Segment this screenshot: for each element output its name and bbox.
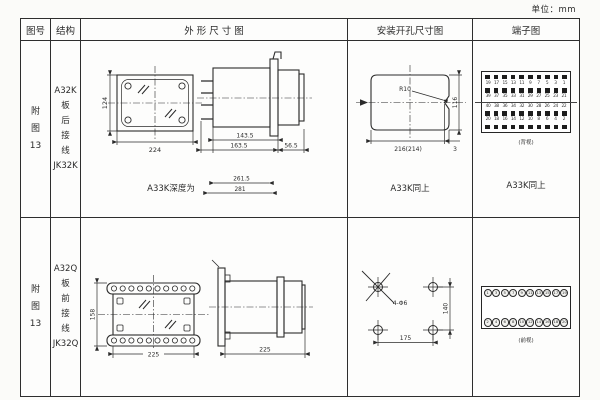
fig-no-char: 附 xyxy=(31,107,40,118)
row1-mounting-drawing: R10 216(214) 3 116 A33K同上 xyxy=(348,41,472,217)
header-structure: 结构 xyxy=(51,19,81,41)
terminal-circle: 14 xyxy=(535,318,543,326)
dim-front-height: 124 xyxy=(101,97,109,109)
terminal-circle: 3 xyxy=(492,289,500,297)
structure-line: JK32Q xyxy=(53,339,79,350)
dim-holes: 4-Φ6 xyxy=(393,300,408,307)
terminal-square xyxy=(511,111,516,116)
row2-fig-no-cell: 附图13 xyxy=(21,218,51,396)
row2-mounting-drawing: 4-Φ6 140 175 xyxy=(348,218,472,395)
terminal-square xyxy=(494,111,499,116)
terminal-square xyxy=(528,125,533,130)
terminal-strip-front: 135791113151719 2468101214161820 xyxy=(481,286,571,329)
structure-line: A32Q xyxy=(54,264,77,275)
terminal-number: 16 xyxy=(502,118,508,123)
terminal-number: 33 xyxy=(510,95,516,100)
row1-fig-no-cell: 附图13 xyxy=(21,41,51,218)
row1-terminal-cell: 191715131197531 39373533312927252321 403… xyxy=(473,41,579,218)
terminal-square xyxy=(485,75,490,80)
terminal-square xyxy=(528,111,533,116)
structure-line: 线 xyxy=(61,324,70,335)
terminal-number: 4 xyxy=(553,118,559,123)
terminal-circle: 7 xyxy=(509,289,517,297)
row2-fig-no: 附图13 xyxy=(21,218,50,396)
dim-side-inner: 143.5 xyxy=(236,133,253,140)
terminal-number: 3 xyxy=(553,82,559,87)
fig-no-char: 图 xyxy=(31,302,40,313)
dim-side-depth: 56.5 xyxy=(284,143,298,150)
terminal-square xyxy=(545,125,550,130)
row2-structure-cell: A32Q板前接线JK32Q xyxy=(51,218,81,396)
terminal-circle: 2 xyxy=(484,318,492,326)
front-view xyxy=(108,66,202,140)
dim-pitch-v: 140 xyxy=(443,303,450,315)
terminal-square-row xyxy=(485,88,567,93)
terminal-grid-rear: 191715131197531 39373533312927252321 403… xyxy=(481,71,571,133)
terminal-number: 8 xyxy=(536,118,542,123)
terminal-square xyxy=(511,125,516,130)
structure-line: 线 xyxy=(61,146,70,157)
terminal-number-row: 2018161412108642 xyxy=(485,118,567,123)
terminal-number-row: 40383634323028262422 xyxy=(485,105,567,110)
terminal-square xyxy=(519,111,524,116)
terminal-number: 36 xyxy=(502,105,508,110)
dim-front-width: 225 xyxy=(148,352,160,359)
terminal-square xyxy=(511,75,516,80)
terminal-number: 38 xyxy=(493,105,499,110)
terminal-number: 26 xyxy=(544,105,550,110)
dim-cut-height: 116 xyxy=(452,97,459,109)
terminal-circle: 10 xyxy=(518,318,526,326)
terminal-square xyxy=(545,75,550,80)
fig-no-char: 13 xyxy=(30,141,41,152)
terminal-square xyxy=(554,75,559,80)
terminal-square xyxy=(485,88,490,93)
dim-depth-outer: 281 xyxy=(234,187,245,193)
terminal-caption-front: (前视) xyxy=(473,336,579,344)
side-view xyxy=(197,52,312,136)
terminal-square xyxy=(519,88,524,93)
terminal-centerline xyxy=(475,102,577,103)
terminal-square xyxy=(554,111,559,116)
header-terminal: 端子图 xyxy=(473,19,579,41)
cutout-dimensions xyxy=(371,75,462,144)
terminal-number: 34 xyxy=(510,105,516,110)
terminal-circle: 13 xyxy=(535,289,543,297)
terminal-square xyxy=(502,125,507,130)
dim-front-width: 224 xyxy=(149,146,161,154)
terminal-number: 13 xyxy=(510,82,516,87)
terminal-square xyxy=(537,125,542,130)
terminal-number: 10 xyxy=(527,118,533,123)
terminal-square xyxy=(545,88,550,93)
terminal-square xyxy=(562,111,567,116)
terminal-circle: 12 xyxy=(526,318,534,326)
terminal-square xyxy=(562,88,567,93)
terminal-square xyxy=(537,75,542,80)
row1-outline-drawing: 124 224 143.5 163. xyxy=(81,41,347,217)
terminal-number: 25 xyxy=(544,95,550,100)
structure-line: JK32K xyxy=(53,161,77,172)
terminal-square xyxy=(519,125,524,130)
terminal-number: 27 xyxy=(536,95,542,100)
spec-sheet-page: 单位：mm 图号 结构 外 形 尺 寸 图 安装开孔尺寸图 端子图 附图13 A… xyxy=(0,0,600,400)
depth-note-label: A33K深度为 xyxy=(147,183,195,194)
structure-line: 接 xyxy=(61,131,70,142)
terminal-square xyxy=(545,111,550,116)
terminal-number: 37 xyxy=(493,95,499,100)
terminal-number: 1 xyxy=(561,82,567,87)
row2-mounting-cell: 4-Φ6 140 175 xyxy=(348,218,473,396)
spec-table: 图号 结构 外 形 尺 寸 图 安装开孔尺寸图 端子图 附图13 A32K板后接… xyxy=(20,18,580,397)
row1-structure-cell: A32K板后接线JK32K xyxy=(51,41,81,218)
terminal-square xyxy=(502,111,507,116)
terminal-number: 28 xyxy=(536,105,542,110)
terminal-number: 17 xyxy=(493,82,499,87)
terminal-circle-row: 2468101214161820 xyxy=(484,318,569,326)
structure-line: 板 xyxy=(61,101,70,112)
terminal-number: 24 xyxy=(553,105,559,110)
dim-side-outer: 163.5 xyxy=(230,143,247,150)
terminal-square xyxy=(528,88,533,93)
header-outline: 外 形 尺 寸 图 xyxy=(81,19,348,41)
terminal-circle: 16 xyxy=(543,318,551,326)
structure-line: 前 xyxy=(61,294,70,305)
dim-side-width: 225 xyxy=(259,347,271,354)
terminal-square xyxy=(562,75,567,80)
terminal-number: 32 xyxy=(519,105,525,110)
terminal-note: A33K同上 xyxy=(473,179,579,191)
terminal-circle: 17 xyxy=(552,289,560,297)
terminal-square xyxy=(485,111,490,116)
terminal-number: 18 xyxy=(493,118,499,123)
terminal-number-row: 191715131197531 xyxy=(485,82,567,87)
terminal-square xyxy=(537,111,542,116)
front-view xyxy=(98,275,210,359)
dim-front-height: 158 xyxy=(90,309,97,321)
terminal-number: 40 xyxy=(485,105,491,110)
cutout-shape xyxy=(356,65,466,140)
row1-mounting-cell: R10 216(214) 3 116 A33K同上 xyxy=(348,41,473,218)
terminal-circle: 20 xyxy=(560,318,568,326)
fig-no-char: 图 xyxy=(31,124,40,135)
terminal-number-row: 39373533312927252321 xyxy=(485,95,567,100)
structure-line: 后 xyxy=(61,116,70,127)
terminal-number: 2 xyxy=(561,118,567,123)
terminal-circle: 5 xyxy=(501,289,509,297)
terminal-number: 29 xyxy=(527,95,533,100)
terminal-number: 11 xyxy=(519,82,525,87)
header-fig-no: 图号 xyxy=(21,19,51,41)
terminal-square xyxy=(511,88,516,93)
terminal-square xyxy=(485,125,490,130)
terminal-square-row xyxy=(485,125,567,130)
row2-outline-cell: 158 225 225 xyxy=(81,218,348,396)
row2-terminal-cell: 135791113151719 2468101214161820 (前视) xyxy=(473,218,579,396)
terminal-circle: 6 xyxy=(501,318,509,326)
terminal-number: 39 xyxy=(485,95,491,100)
terminal-square xyxy=(554,88,559,93)
dim-cut-width: 216(214) xyxy=(394,146,422,153)
terminal-number: 15 xyxy=(502,82,508,87)
row1-fig-no: 附图13 xyxy=(21,41,50,217)
terminal-square xyxy=(502,75,507,80)
terminal-number: 35 xyxy=(502,95,508,100)
terminal-number: 20 xyxy=(485,118,491,123)
terminal-number: 6 xyxy=(544,118,550,123)
terminal-square xyxy=(528,75,533,80)
terminal-square xyxy=(519,75,524,80)
fig-no-char: 13 xyxy=(30,319,41,330)
terminal-circle-row: 135791113151719 xyxy=(484,289,569,297)
row2-structure: A32Q板前接线JK32Q xyxy=(51,218,80,396)
terminal-number: 9 xyxy=(527,82,533,87)
structure-line: A32K xyxy=(54,86,76,97)
terminal-circle: 15 xyxy=(543,289,551,297)
terminal-number: 19 xyxy=(485,82,491,87)
dim-pitch-h: 175 xyxy=(400,335,412,342)
terminal-number: 7 xyxy=(536,82,542,87)
terminal-square xyxy=(537,88,542,93)
terminal-square xyxy=(562,125,567,130)
dim-depth-inner: 261.5 xyxy=(233,177,250,183)
terminal-caption-rear: (背视) xyxy=(473,138,579,146)
structure-line: 板 xyxy=(61,279,70,290)
terminal-square-row xyxy=(485,111,567,116)
unit-label: 单位：mm xyxy=(531,3,576,15)
terminal-square xyxy=(494,125,499,130)
terminal-number: 23 xyxy=(553,95,559,100)
mounting-note: A33K同上 xyxy=(390,184,430,194)
terminal-square xyxy=(502,88,507,93)
row2-outline-drawing: 158 225 225 xyxy=(81,218,347,395)
terminal-number: 12 xyxy=(519,118,525,123)
terminal-number: 14 xyxy=(510,118,516,123)
header-mounting: 安装开孔尺寸图 xyxy=(348,19,473,41)
terminal-square xyxy=(494,75,499,80)
front-view-dimensions xyxy=(107,75,193,145)
terminal-circle: 1 xyxy=(484,289,492,297)
terminal-circle: 8 xyxy=(509,318,517,326)
side-view xyxy=(209,260,313,346)
fig-no-char: 附 xyxy=(31,285,40,296)
row1-outline-cell: 124 224 143.5 163. xyxy=(81,41,348,218)
terminal-circle: 9 xyxy=(518,289,526,297)
dim-corner-radius: R10 xyxy=(399,86,411,93)
terminal-square-row xyxy=(485,75,567,80)
terminal-circle: 19 xyxy=(560,289,568,297)
terminal-circle: 11 xyxy=(526,289,534,297)
terminal-square xyxy=(554,125,559,130)
terminal-number: 31 xyxy=(519,95,525,100)
dim-edge-gap: 3 xyxy=(453,146,457,153)
terminal-square xyxy=(494,88,499,93)
row1-structure: A32K板后接线JK32K xyxy=(51,41,80,217)
terminal-circle: 4 xyxy=(492,318,500,326)
terminal-number: 5 xyxy=(544,82,550,87)
terminal-circle: 18 xyxy=(552,318,560,326)
terminal-number: 30 xyxy=(527,105,533,110)
terminal-number: 21 xyxy=(561,95,567,100)
structure-line: 接 xyxy=(61,309,70,320)
terminal-number: 22 xyxy=(561,105,567,110)
